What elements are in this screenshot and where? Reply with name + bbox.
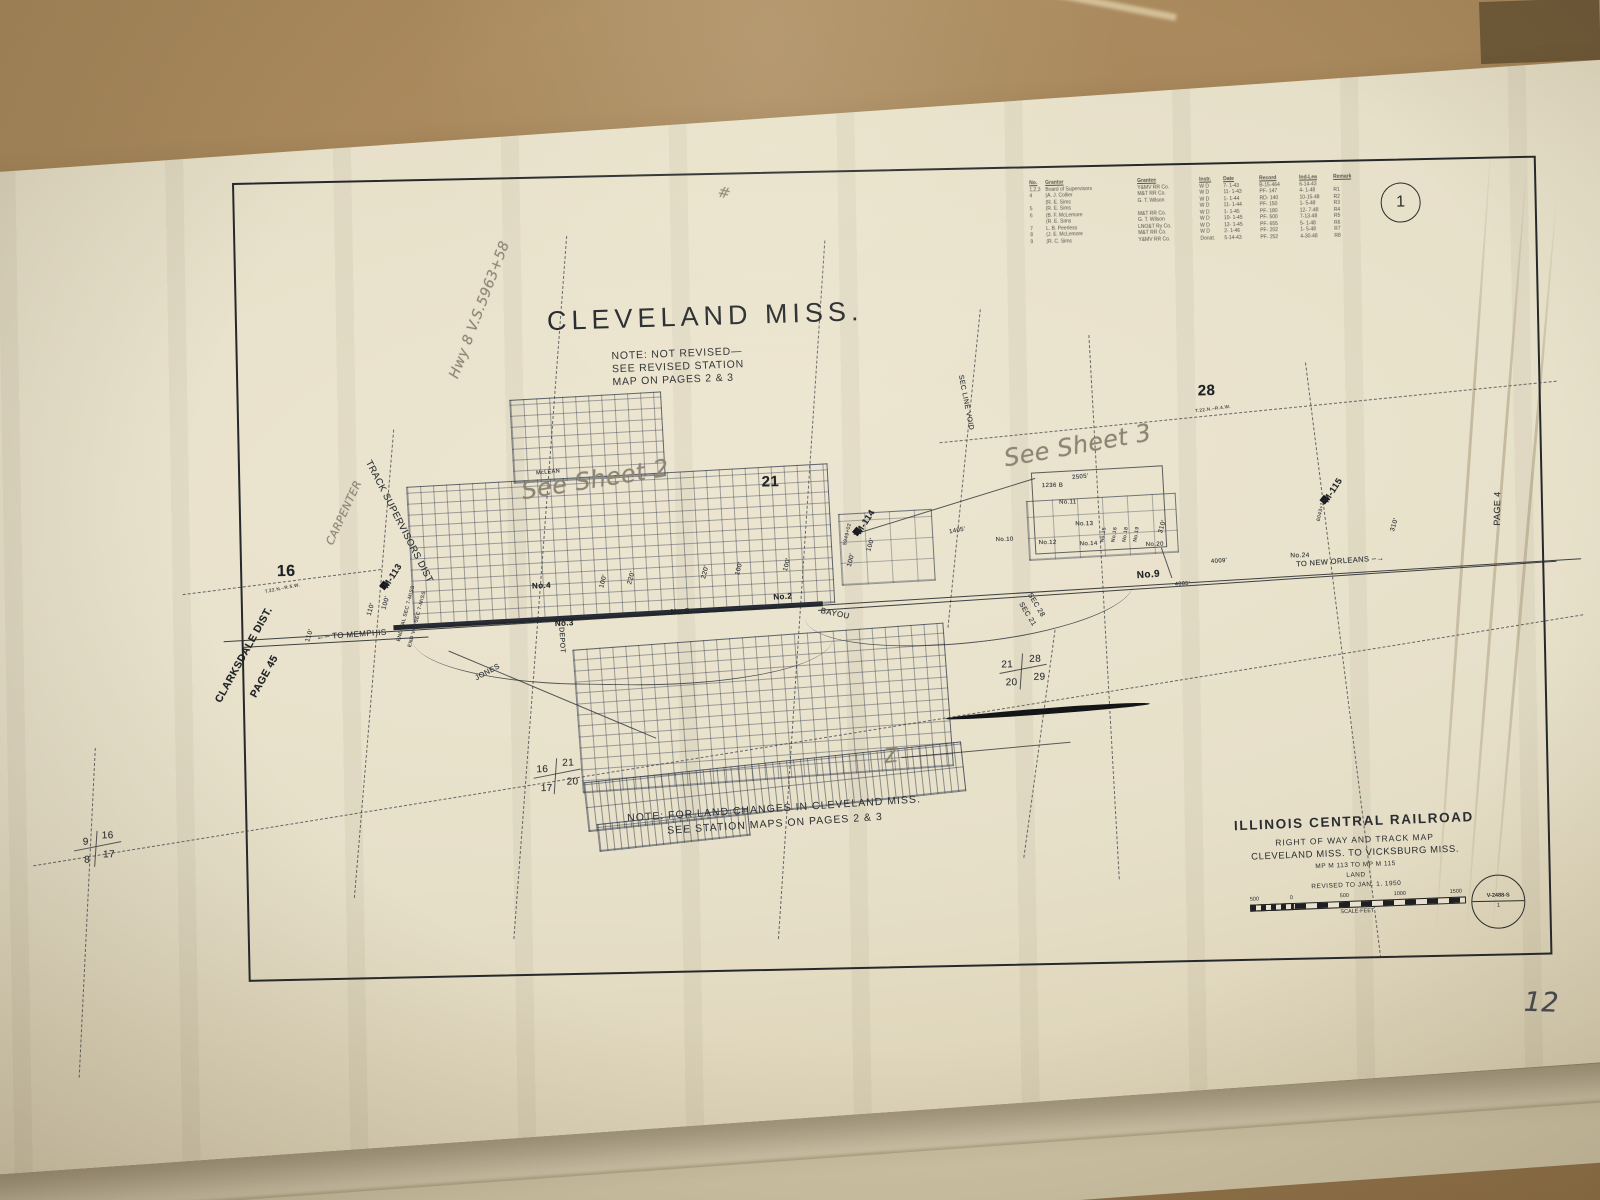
photo-of-track-map: 12 [0, 0, 1600, 1200]
pencil-hash-mark: # [716, 182, 733, 202]
revision-table: No.GrantorGranteeInstr.DateRecordInd-Lea… [1029, 174, 1352, 246]
corner2-16: 16 [536, 764, 548, 775]
map-title: CLEVELAND MISS. [546, 296, 863, 337]
dim-110-b: 110' [366, 602, 377, 617]
sheet-number-circle: 1 [1380, 182, 1421, 223]
dim-100-a: 100' [380, 595, 391, 610]
rev-cell: Donat. [1200, 235, 1224, 242]
track-no-5: No.5 [670, 607, 689, 617]
section-corner-cross [554, 758, 558, 794]
corner2-17: 17 [541, 783, 553, 794]
sheet-number: 1 [1396, 193, 1405, 210]
corner3-8: 8 [84, 855, 90, 866]
table-light-streak [969, 0, 1176, 21]
arc-28: T.22.N.–R.4.W. [1195, 404, 1231, 413]
dim-310-b: 310' [1389, 517, 1400, 532]
scale-bar: 500 0 500 1000 1500 SCALE·FEET [1250, 888, 1465, 914]
stamp-number: V-2488-S [1472, 892, 1524, 902]
parcel-no-13: No.13 [1075, 521, 1093, 527]
rev-cell: 9 [1030, 238, 1046, 245]
track-no-2: No.2 [773, 592, 792, 602]
parcel-no-24: No.24 [1290, 552, 1310, 559]
page-4: PAGE 4 [1492, 491, 1502, 525]
sec-line-void-dash [947, 309, 980, 627]
parcel-1236b: 1236 B [1042, 483, 1064, 489]
corner1-28: 28 [1029, 654, 1041, 665]
section-28: 28 [1198, 382, 1216, 399]
rev-cell: (R. C. Sims [1046, 237, 1138, 245]
rev-cell: Y&MV RR Co. [1138, 235, 1200, 243]
dim-4009: 4009' [1211, 558, 1228, 565]
pencil-stroke-heavy [945, 701, 1150, 722]
section-21: 21 [761, 473, 779, 490]
track-no-3: No.3 [555, 618, 574, 628]
title-block: ILLINOIS CENTRAL RAILROAD RIGHT OF WAY A… [1209, 808, 1503, 916]
drawing-number-stamp: V-2488-S 1 [1471, 874, 1526, 929]
pencil-see-sheet-3: See Sheet 3 [1002, 418, 1154, 472]
corner1-20: 20 [1006, 677, 1018, 688]
parcel-no-14: No.14 [1080, 541, 1098, 547]
dim-4005: 4005' [1175, 581, 1191, 588]
corner2-21: 21 [562, 757, 574, 768]
section-16: 16 [277, 563, 296, 581]
parcel-no-10: No.10 [996, 537, 1014, 543]
parcel-no-12: No.12 [1039, 540, 1057, 546]
section-corner-cross [1019, 653, 1023, 689]
township-dash-line [940, 381, 1557, 444]
track-no-9: No.9 [1136, 569, 1160, 582]
pencil-hwy8: Hwy 8 V.S.5963+58 [446, 239, 513, 381]
table-dark-corner [1479, 0, 1600, 64]
pencil-z-mark: Z [883, 743, 900, 769]
corner3-17: 17 [103, 849, 115, 860]
rev-cell: PF- 252 [1260, 233, 1300, 240]
scale-label: 500 [1340, 893, 1349, 899]
track-no-4: No.4 [532, 581, 551, 591]
corner3-9: 9 [83, 837, 89, 848]
scale-label: 0 [1290, 895, 1293, 901]
corner2-20: 20 [567, 776, 579, 787]
milepost-m113: M-113 [381, 562, 404, 590]
corner1-29: 29 [1033, 672, 1045, 683]
clarksdale-page-45: PAGE 45 [248, 653, 281, 699]
rev-cell: R8 [1334, 232, 1352, 239]
parcel-no-11: No.11 [1059, 499, 1077, 505]
corner1-21: 21 [1001, 659, 1013, 670]
stamp-sub-number: 1 [1472, 902, 1524, 909]
rev-cell: 4-30-48 [1300, 232, 1334, 239]
parcel-no-20: No.20 [1146, 542, 1164, 548]
town-grid-small [838, 509, 936, 586]
corner3-16: 16 [102, 830, 114, 841]
scale-label: 500 [1250, 896, 1259, 902]
map-title-note: NOTE: NOT REVISED— SEE REVISED STATION M… [611, 345, 744, 389]
pencil-page-number: 12 [1523, 987, 1559, 1019]
scale-label: 1500 [1450, 889, 1462, 895]
map-border-frame: CLEVELAND MISS. NOTE: NOT REVISED— SEE R… [232, 156, 1552, 982]
pencil-carpenter: CARPENTER [323, 478, 364, 547]
scale-label: 1000 [1394, 891, 1406, 897]
depot: DEPOT [557, 627, 565, 653]
rev-cell: 5-14-43 [1224, 234, 1260, 241]
